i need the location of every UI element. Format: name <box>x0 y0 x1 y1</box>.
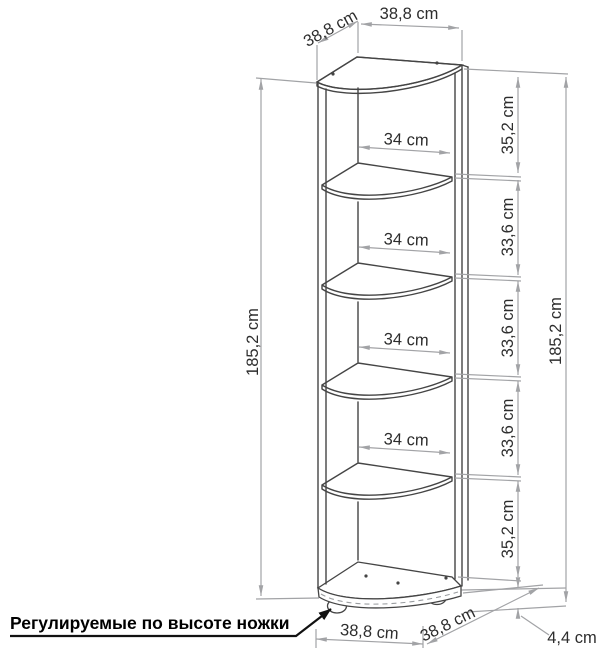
shelf-width-label-3: 34 cm <box>383 330 429 350</box>
top-panel <box>317 57 468 93</box>
shelf-width-label-4: 34 cm <box>383 430 429 450</box>
left-height-extension-lines <box>256 78 319 599</box>
right-panel-edges <box>455 67 468 586</box>
bottom-width-label: 38,8 cm <box>339 621 399 643</box>
left-height-label: 185,2 cm <box>244 308 262 376</box>
shelf-2 <box>322 263 452 299</box>
shelf-4 <box>322 463 452 499</box>
right-height-label: 185,2 cm <box>547 297 565 365</box>
drawing-svg: 38,8 cm 38,8 cm 185,2 cm 34 cm 34 cm 34 … <box>0 0 608 660</box>
shelf-width-label-1: 34 cm <box>383 130 429 150</box>
base-fitting-dot <box>444 576 447 579</box>
shelf-width-label-2: 34 cm <box>383 230 429 250</box>
gap-label-5: 35,2 cm <box>499 500 517 559</box>
left-panel-edges <box>318 84 326 588</box>
gap-label-4: 33,6 cm <box>499 399 517 458</box>
top-width-dimension-line <box>361 24 459 28</box>
base-plinth <box>318 562 461 608</box>
corner-shelf-technical-drawing: 38,8 cm 38,8 cm 185,2 cm 34 cm 34 cm 34 … <box>0 0 608 660</box>
gap-label-3: 33,6 cm <box>499 299 517 358</box>
feet-height-label: 4,4 cm <box>547 629 597 647</box>
top-fitting-dot <box>435 61 438 64</box>
feet-note-text: Регулируемые по высоте ножки <box>10 613 290 633</box>
base-fitting-dot <box>364 574 367 577</box>
feet-note: Регулируемые по высоте ножки <box>10 609 331 636</box>
top-panel-surface <box>317 57 462 89</box>
feet-height-leader <box>521 616 549 635</box>
gap-label-2: 33,6 cm <box>499 198 517 257</box>
shelf-3 <box>322 363 452 399</box>
bottom-depth-label: 38,8 cm <box>417 604 478 646</box>
dimension-labels: 38,8 cm 38,8 cm 185,2 cm 34 cm 34 cm 34 … <box>244 5 597 647</box>
shelf-1 <box>322 163 452 199</box>
gap-label-1: 35,2 cm <box>499 96 517 155</box>
top-width-label: 38,8 cm <box>380 5 439 23</box>
base-fitting-dot <box>396 581 399 584</box>
top-depth-label: 38,8 cm <box>301 7 361 51</box>
top-fitting-dot <box>331 72 334 75</box>
